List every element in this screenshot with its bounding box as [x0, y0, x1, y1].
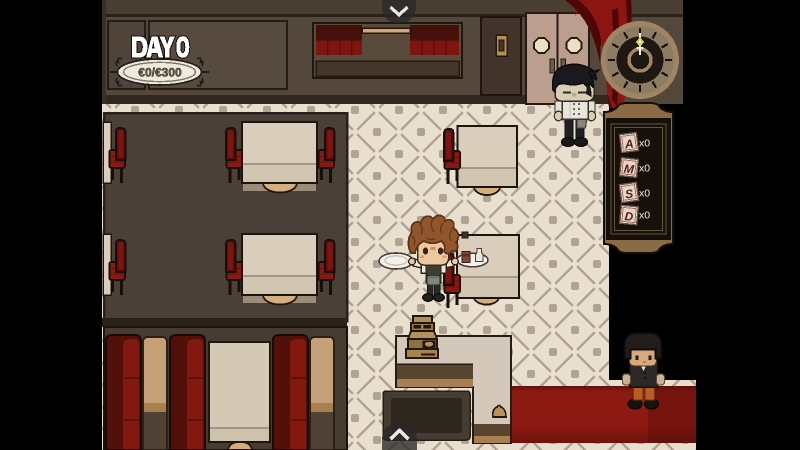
svg-text:x0: x0 [639, 210, 650, 222]
svg-text:x0: x0 [639, 138, 650, 150]
svg-text:x0: x0 [639, 163, 650, 175]
svg-text:A: A [623, 137, 634, 152]
svg-text:€0/€300: €0/€300 [138, 66, 182, 80]
svg-text:x0: x0 [639, 188, 650, 200]
svg-text:D: D [624, 209, 634, 224]
